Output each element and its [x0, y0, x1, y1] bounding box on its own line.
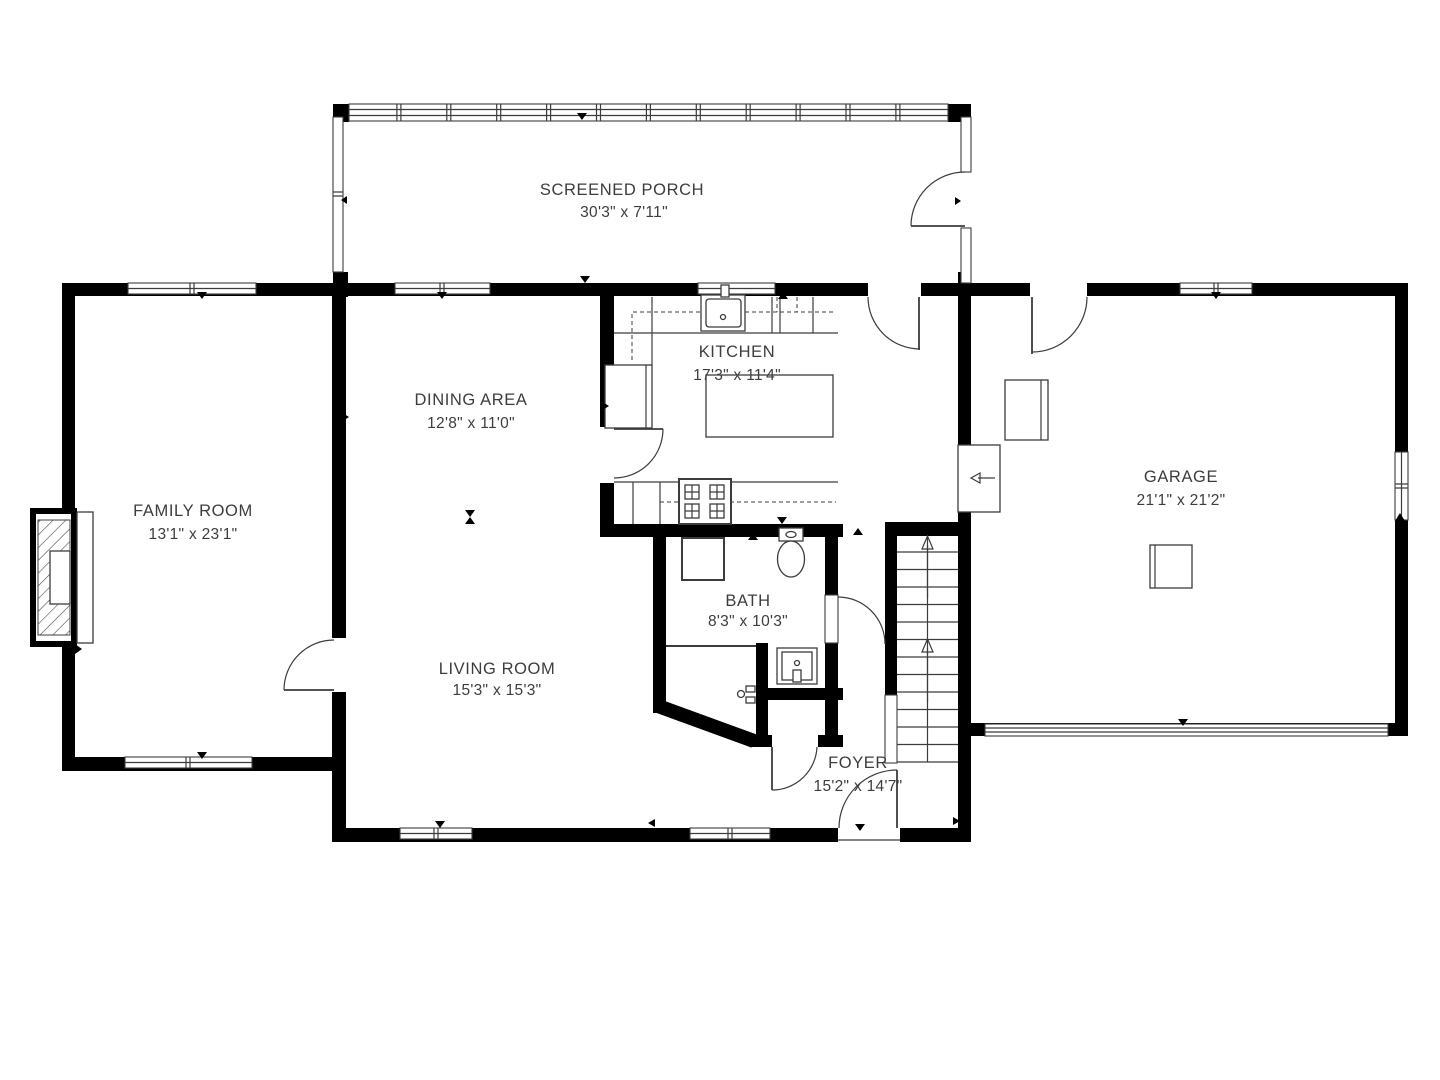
- marker: [853, 528, 863, 535]
- fireplace-hearth: [77, 512, 93, 643]
- room-dims-family-room: 13'1" x 23'1": [149, 526, 238, 543]
- door-dining-to-kitchen: [614, 429, 663, 478]
- kitchen-island: [706, 375, 833, 437]
- marker: [955, 197, 961, 205]
- stair-rail: [885, 695, 897, 763]
- window-kitchen-top: [698, 283, 775, 294]
- window-family-top: [128, 283, 256, 294]
- room-label-garage: GARAGE: [1144, 468, 1218, 486]
- room-label-bath: BATH: [725, 592, 770, 610]
- marker: [580, 276, 590, 283]
- garage-post: [1150, 545, 1192, 588]
- marker: [777, 517, 787, 524]
- room-label-living-room: LIVING ROOM: [439, 660, 556, 678]
- door-porch-to-kitchen: [868, 297, 920, 350]
- room-label-family-room: FAMILY ROOM: [133, 502, 253, 520]
- bath-sink: [777, 648, 817, 684]
- floorplan-canvas: SCREENED PORCH 30'3" x 7'11" KITCHEN 17'…: [0, 0, 1440, 1080]
- room-dims-garage: 21'1" x 21'2": [1137, 492, 1226, 509]
- door-porch-to-garage: [1032, 297, 1087, 354]
- kitchen-cooktop: [679, 479, 731, 524]
- floorplan-svg: SCREENED PORCH 30'3" x 7'11" KITCHEN 17'…: [0, 0, 1440, 1080]
- room-label-foyer: FOYER: [828, 754, 888, 772]
- fireplace-firebox: [50, 551, 70, 604]
- garage-step-landing: [958, 445, 1000, 512]
- porch-screen-left: [333, 117, 343, 272]
- porch-screen-top: [349, 104, 948, 121]
- marker: [648, 819, 655, 827]
- window-garage-right: [1395, 452, 1408, 520]
- garage-door-band: [985, 724, 1388, 736]
- room-dims-kitchen: 17'3" x 11'4": [693, 367, 781, 384]
- marker: [465, 510, 475, 517]
- window-living-bottom-1: [400, 828, 472, 839]
- room-label-dining-area: DINING AREA: [415, 391, 528, 409]
- marker: [75, 644, 82, 654]
- porch-screen-right-upper: [961, 117, 971, 172]
- stair-up-arrow: [922, 536, 933, 598]
- opening-porch-to-kitchen: [868, 283, 921, 296]
- door-foyer-closet: [772, 747, 817, 790]
- kitchen-fixtures: [605, 285, 838, 524]
- window-living-bottom-2: [690, 828, 770, 839]
- door-family-room: [284, 640, 334, 690]
- room-label-screened-porch: SCREENED PORCH: [540, 181, 704, 199]
- wall-bath-diagonal: [658, 706, 754, 741]
- room-label-kitchen: KITCHEN: [699, 343, 776, 361]
- shower: [682, 538, 724, 580]
- room-dims-foyer: 15'2" x 14'7": [814, 778, 903, 795]
- room-dims-bath: 8'3" x 10'3": [708, 613, 788, 630]
- door-bath: [825, 595, 885, 644]
- window-family-bottom: [125, 757, 252, 768]
- fireplace: [30, 508, 93, 647]
- marker: [465, 517, 475, 524]
- door-hardware-icon: [738, 686, 756, 703]
- room-dims-dining-area: 12'8" x 11'0": [427, 415, 515, 432]
- kitchen-refrigerator: [605, 365, 652, 428]
- porch-screen-right-lower: [961, 228, 971, 283]
- opening-porch-to-garage: [1030, 283, 1087, 296]
- toilet: [778, 528, 805, 577]
- room-dims-living-room: 15'3" x 15'3": [453, 682, 542, 699]
- marker: [435, 821, 445, 828]
- staircase: [885, 445, 1000, 763]
- room-dims-screened-porch: 30'3" x 7'11": [580, 204, 668, 221]
